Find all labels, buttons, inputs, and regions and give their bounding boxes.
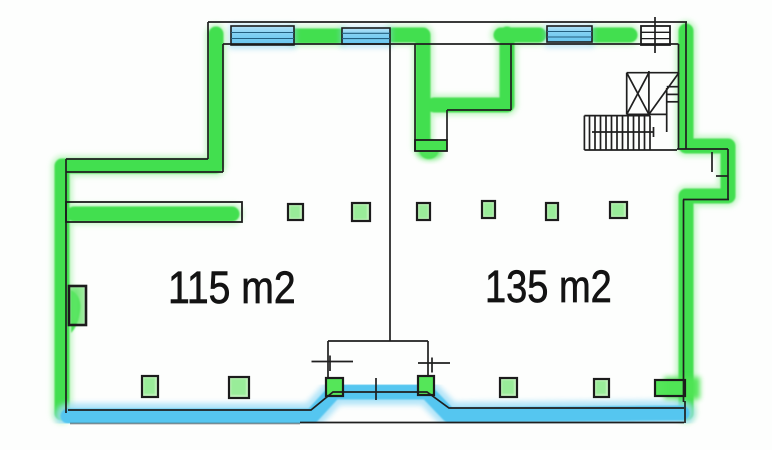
svg-text:115 m2: 115 m2 (168, 262, 296, 312)
svg-text:135 m2: 135 m2 (485, 261, 612, 312)
